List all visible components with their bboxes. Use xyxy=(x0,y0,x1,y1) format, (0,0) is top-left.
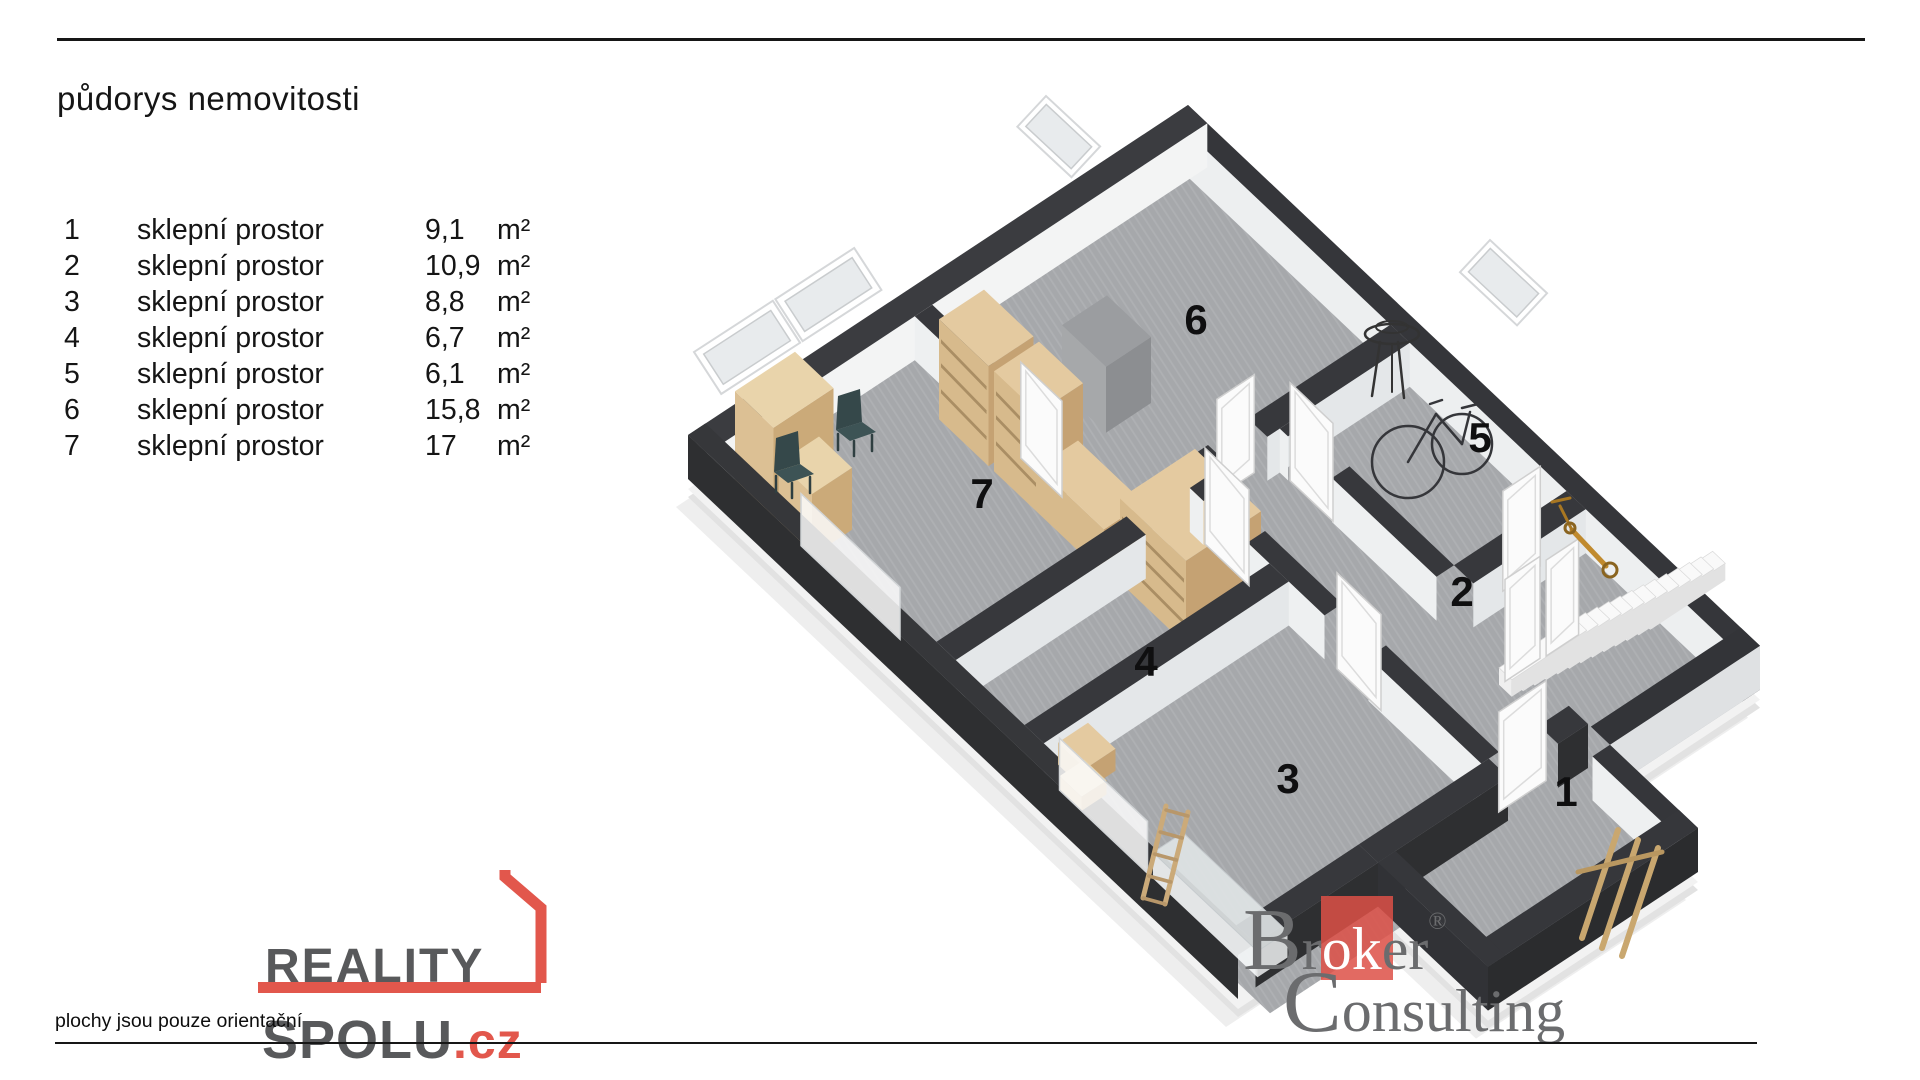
legend-room-name: sklepní prostor xyxy=(137,428,324,464)
legend-room-area: 17 xyxy=(425,428,457,464)
broker-word2: Consulting xyxy=(1283,952,1565,1053)
legend-room-area: 9,1 xyxy=(425,212,465,248)
legend-unit: m² xyxy=(497,248,530,284)
legend-room-area: 10,9 xyxy=(425,248,480,284)
legend-unit: m² xyxy=(497,320,530,356)
legend-room-number: 1 xyxy=(64,212,80,248)
legend-room-number: 6 xyxy=(64,392,80,428)
registered-icon: ® xyxy=(1428,909,1446,935)
legend-room-name: sklepní prostor xyxy=(137,356,324,392)
legend-room-number: 5 xyxy=(64,356,80,392)
room-label-6: 6 xyxy=(1184,296,1207,343)
page-title: půdorys nemovitosti xyxy=(57,80,360,118)
broker-consulting-watermark: Broker® Consulting xyxy=(1243,890,1703,1050)
legend-room-name: sklepní prostor xyxy=(137,284,324,320)
legend-room-number: 2 xyxy=(64,248,80,284)
room-label-7: 7 xyxy=(970,470,993,517)
reality-spolu-word1: REALITY xyxy=(265,939,484,994)
legend-unit: m² xyxy=(497,284,530,320)
room-label-3: 3 xyxy=(1276,755,1299,802)
legend-room-number: 4 xyxy=(64,320,80,356)
legend-room-number: 7 xyxy=(64,428,80,464)
page: půdorys nemovitosti 1sklepní prostor9,1m… xyxy=(0,0,1920,1080)
legend-room-number: 3 xyxy=(64,284,80,320)
room-label-5: 5 xyxy=(1468,414,1491,461)
legend-unit: m² xyxy=(497,428,530,464)
legend-unit: m² xyxy=(497,392,530,428)
legend-unit: m² xyxy=(497,356,530,392)
bottom-divider xyxy=(55,1042,1757,1044)
legend-room-area: 6,7 xyxy=(425,320,465,356)
reality-spolu-tld: .cz xyxy=(453,1013,523,1069)
disclaimer-text: plochy jsou pouze orientační xyxy=(55,1010,302,1033)
legend-room-name: sklepní prostor xyxy=(137,212,324,248)
room-label-2: 2 xyxy=(1450,568,1473,615)
legend-room-name: sklepní prostor xyxy=(137,320,324,356)
legend-unit: m² xyxy=(497,212,530,248)
legend-room-area: 8,8 xyxy=(425,284,465,320)
legend-room-area: 6,1 xyxy=(425,356,465,392)
legend-room-name: sklepní prostor xyxy=(137,392,324,428)
room-label-4: 4 xyxy=(1134,638,1158,685)
top-divider xyxy=(57,38,1865,41)
legend-room-area: 15,8 xyxy=(425,392,480,428)
legend-room-name: sklepní prostor xyxy=(137,248,324,284)
room-label-1: 1 xyxy=(1554,768,1577,815)
